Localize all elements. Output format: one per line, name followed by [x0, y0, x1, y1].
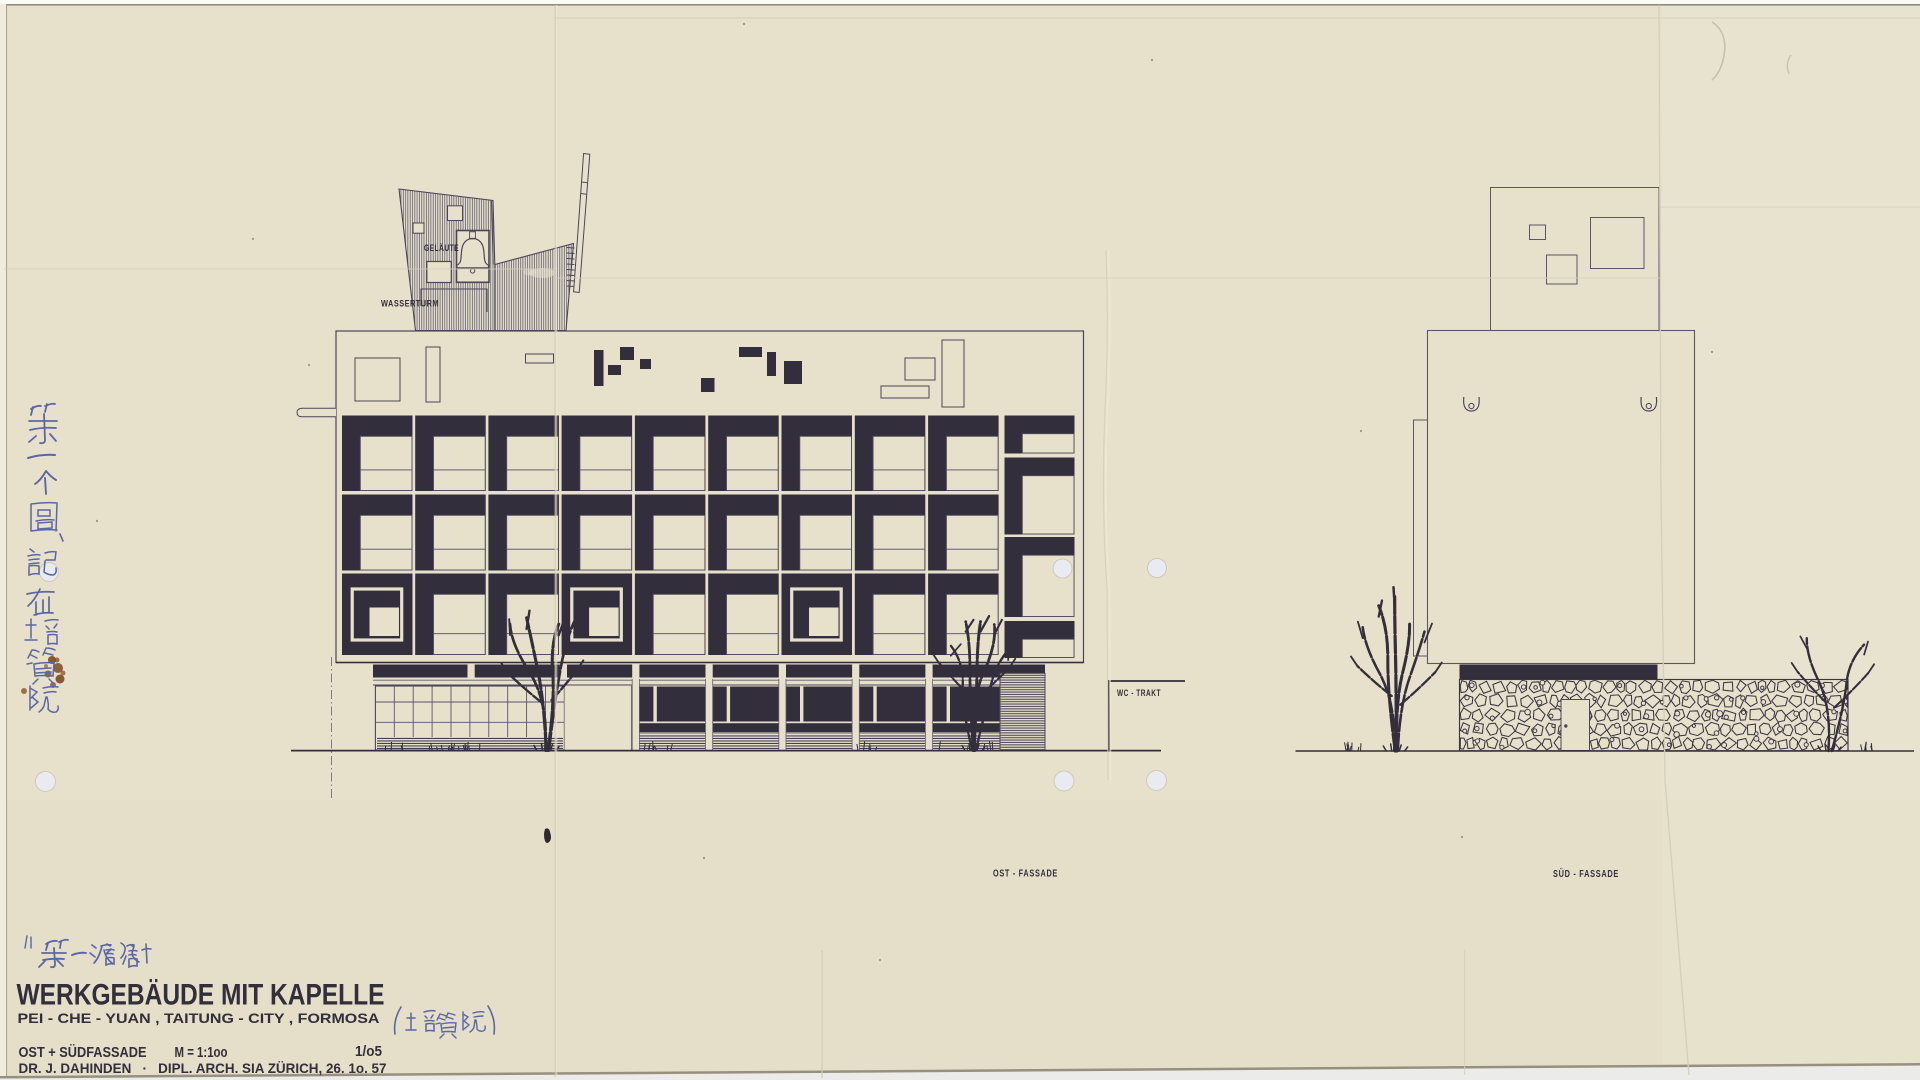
svg-text:M = 1:1oo: M = 1:1oo: [175, 1045, 228, 1061]
svg-text:PEI - CHE - YUAN , TAITUNG - C: PEI - CHE - YUAN , TAITUNG - CITY , FORM…: [18, 1010, 380, 1026]
svg-text:GELÄUTE: GELÄUTE: [424, 243, 459, 253]
svg-text:WERKGEBÄUDE MIT KAPELLE: WERKGEBÄUDE MIT KAPELLE: [17, 979, 385, 1012]
svg-text:OST + SÜDFASSADE: OST + SÜDFASSADE: [19, 1044, 147, 1061]
svg-text:WASSERTURM: WASSERTURM: [381, 299, 439, 310]
svg-text:SÜD - FASSADE: SÜD - FASSADE: [1553, 867, 1619, 880]
svg-text:OST - FASSADE: OST - FASSADE: [993, 868, 1058, 880]
svg-text:WC - TRAKT: WC - TRAKT: [1117, 688, 1161, 699]
svg-text:1/o5: 1/o5: [355, 1044, 382, 1060]
svg-text:DR. J. DAHINDEN · DIPL. AR: DR. J. DAHINDEN · DIPL. ARCH. SIA ZÜRICH…: [19, 1060, 387, 1076]
